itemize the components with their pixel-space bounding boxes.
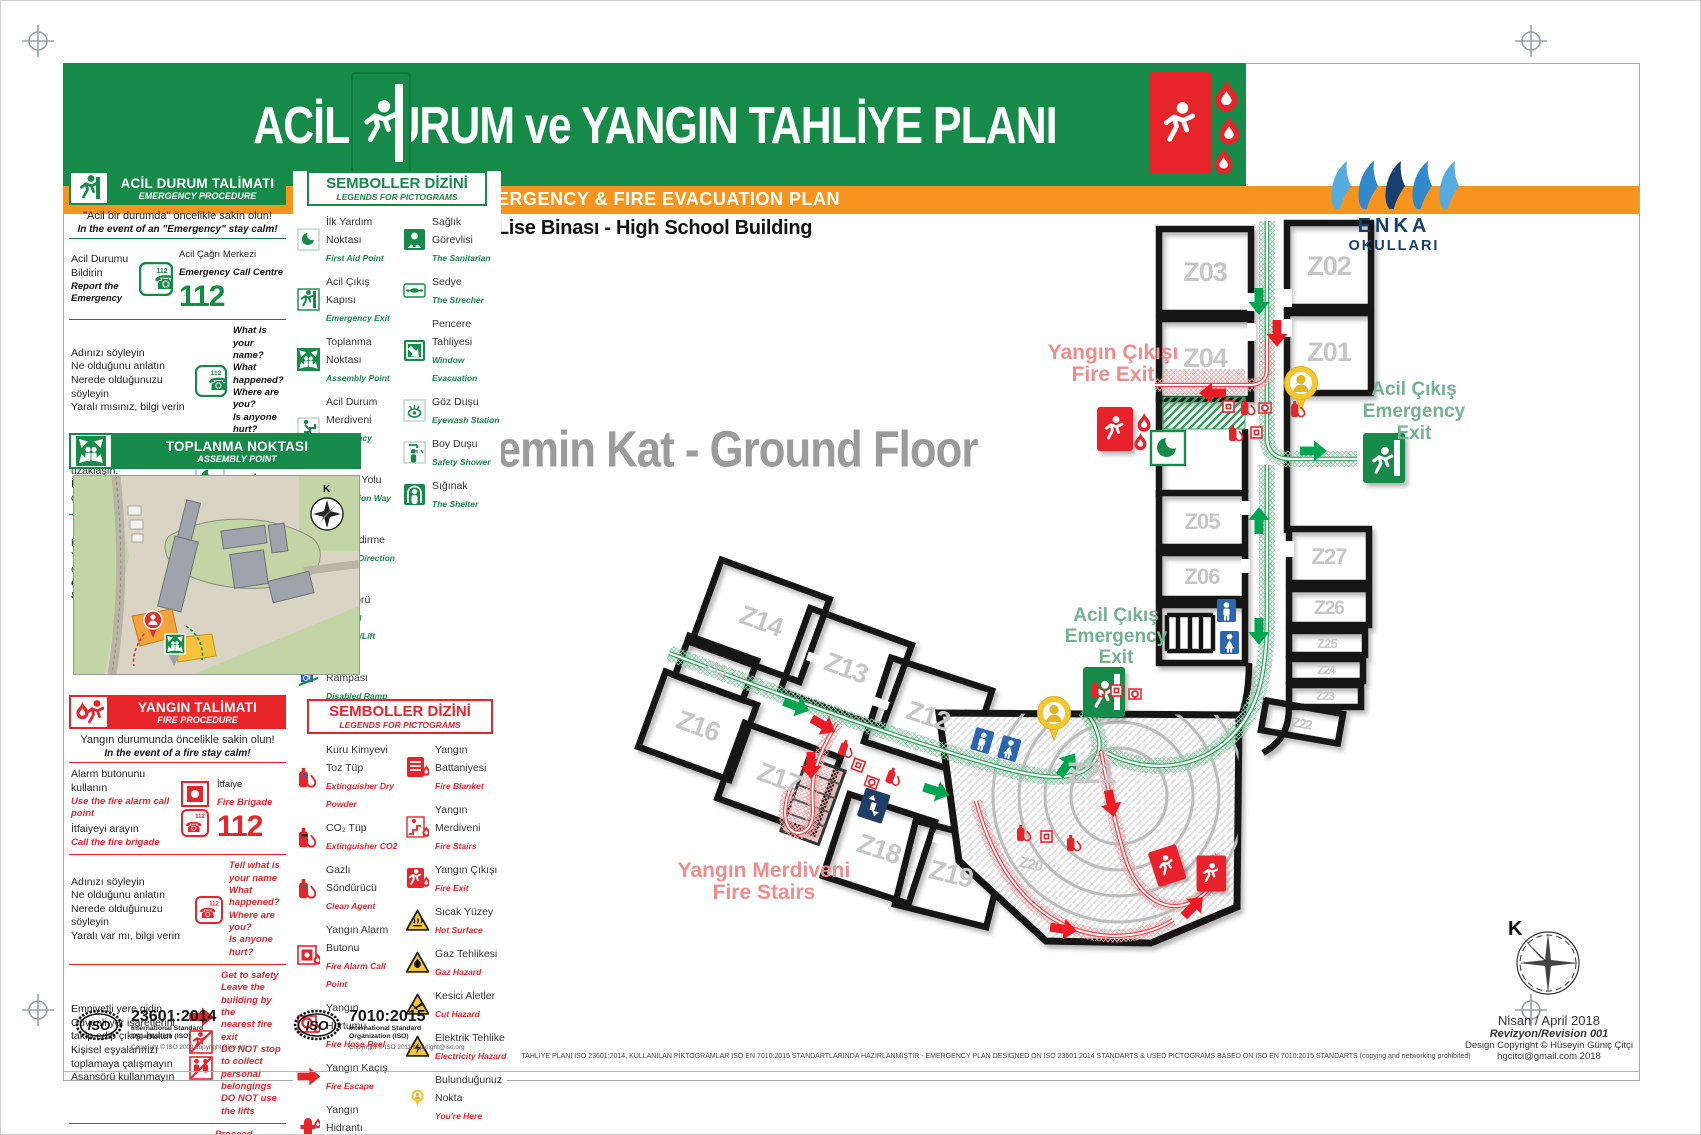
eyewash-icon: [403, 399, 426, 422]
procedure-row: Alarm butonunu kullanınUse the fire alar…: [69, 762, 286, 854]
fire-exit-flames: [1134, 413, 1150, 450]
panel-subtitle: EMERGENCY PROCEDURE: [139, 191, 257, 201]
iso-23601: ISO 23601:2014 International StandardOrg…: [75, 1009, 247, 1051]
window-evacuation-icon: [403, 339, 426, 362]
legend-item: Göz DuşuEyewash Station: [403, 392, 501, 428]
svg-text:Z05: Z05: [1185, 509, 1221, 534]
svg-text:Z16: Z16: [672, 704, 724, 747]
legend-title: SEMBOLLER DİZİNİ: [309, 703, 491, 720]
compass-icon: K: [1496, 909, 1596, 1009]
svg-text:Emergency: Emergency: [1065, 626, 1168, 647]
legend-item: SedyeThe Strecher: [403, 272, 501, 308]
footer-disclaimer: TAHLİYE PLANI ISO 23601:2014, KULLANILAN…: [351, 1053, 1641, 1060]
iso-certifications: ISO 23601:2014 International StandardOrg…: [75, 1009, 465, 1051]
svg-text:Z21: Z21: [1067, 757, 1116, 790]
first-aid-icon: [1151, 431, 1185, 465]
procedure-row: Adınızı söyleyin Ne olduğunu anlatın Ner…: [69, 319, 286, 441]
svg-text:Yangın Çıkışı: Yangın Çıkışı: [1048, 341, 1179, 364]
svg-text:K: K: [1508, 918, 1523, 940]
you-are-here-icon: [406, 1086, 429, 1109]
fire-stairs-icon: [406, 816, 429, 839]
svg-text:Z23: Z23: [1316, 689, 1335, 703]
legend-item: Boy DuşuSafety Shower: [403, 434, 501, 470]
iso-logo: ISO: [293, 1009, 341, 1041]
phone-112-icon: 112☎: [195, 365, 227, 397]
svg-text:Z24: Z24: [1317, 663, 1336, 677]
legend-item: Yangın Alarm ButonuFire Alarm Call Point: [297, 920, 398, 992]
wc-female-icon: [1220, 631, 1239, 654]
legend-item: Yangın HidrantıHydrant: [297, 1100, 398, 1135]
first-aid-point-icon: [297, 228, 320, 251]
footer-divider: [63, 1071, 1639, 1072]
evacuation-plan-poster: Z03 Z02 Z04 Z01 Z05 Z06 Z27 Z26 Z25 Z24 …: [0, 0, 1701, 1135]
fire-escape-arrow-icon: [297, 1065, 320, 1088]
enka-sub: OKULLARI: [1319, 238, 1469, 254]
panel-title: TOPLANMA NOKTASI: [166, 439, 308, 454]
exit-man-icon: [351, 72, 415, 178]
svg-text:Z14: Z14: [735, 599, 787, 642]
svg-text:Fire Stairs: Fire Stairs: [713, 881, 816, 904]
svg-text:Z25: Z25: [1317, 636, 1337, 651]
svg-text:ISO: ISO: [88, 1018, 110, 1033]
svg-text:Fire Exit: Fire Exit: [1072, 363, 1155, 386]
hot-surface-icon: [406, 909, 429, 932]
intro-en: In the event of a fire stay calm!: [69, 747, 286, 760]
fire-brigade-number: 112: [217, 810, 262, 843]
legend-item: İlk Yardım NoktasıFirst Aid Point: [297, 212, 395, 266]
legend-item: Bulunduğunuz NoktaYou're Here: [406, 1070, 507, 1124]
procedure-row: Acil Durumu BildirinReport the Emergency…: [69, 238, 286, 319]
clean-agent-icon: [297, 876, 320, 899]
legend-item: Yangın KaçışFire Escape: [297, 1058, 398, 1094]
header-banner: ACİL DURUM ve YANGIN TAHLİYE PLANI: [63, 63, 1246, 186]
svg-text:Z01: Z01: [1307, 337, 1352, 367]
panel-title: ACİL DURUM TALİMATI: [121, 176, 275, 191]
wc-male-icon: [1217, 599, 1236, 622]
procedure-row: Toplanma noktasına gidin, amire bilgi ve…: [69, 1123, 286, 1135]
fire-procedure-panel: YANGIN TALİMATI FIRE PROCEDURE Yangın du…: [69, 695, 286, 1135]
svg-text:Emergency: Emergency: [1363, 401, 1466, 422]
svg-text:Z13: Z13: [820, 646, 872, 689]
fire-exit-door-icon: [1197, 855, 1227, 891]
svg-text:Z22: Z22: [1291, 714, 1313, 732]
revision-number: Revizyon/Revision 001: [1449, 1028, 1649, 1040]
sanitarian-icon: [403, 228, 426, 251]
alarm-and-phone-icons: 112☎: [181, 781, 211, 837]
panel-subtitle: FIRE PROCEDURE: [157, 715, 238, 725]
panel-subtitle: ASSEMBLY POINT: [197, 454, 276, 464]
hydrant-icon: [297, 1116, 320, 1135]
svg-text:☎: ☎: [199, 905, 216, 921]
legend-item: Gazlı SöndürücüClean Agent: [297, 860, 398, 914]
assembly-point-panel: TOPLANMA NOKTASI ASSEMBLY POINT: [69, 433, 361, 469]
svg-text:Z03: Z03: [1183, 257, 1228, 287]
phone-112-icon: 112☎: [139, 262, 173, 296]
svg-text:Z02: Z02: [1307, 251, 1351, 281]
emergency-exit-icon: [297, 288, 320, 311]
legend-item: Yangın ÇıkışıFire Exit: [406, 860, 507, 896]
legend-item: Sıcak YüzeyHot Surface: [406, 902, 507, 938]
fire-exit-man-icon: [1149, 72, 1249, 178]
design-copyright: Design Copyright © Hüseyin Güniç Çitçi: [1449, 1040, 1649, 1051]
assembly-site-map: K: [73, 475, 360, 675]
intro-en: In the event of an "Emergency" stay calm…: [69, 223, 286, 236]
legend-item: SığınakThe Shelter: [403, 476, 501, 512]
legend-item: Yangın BattaniyesiFire Blanket: [406, 740, 507, 794]
revision-date: Nisan / April 2018: [1449, 1013, 1649, 1028]
svg-text:K: K: [323, 484, 331, 495]
intro-tr: Yangın durumunda öncelikle sakin olun!: [69, 733, 286, 747]
legend-subtitle: LEGENDS FOR PICTOGRAMS: [309, 720, 491, 730]
assembly-point-icon: [297, 348, 320, 371]
floor-title: Zemin Kat - Ground Floor: [471, 419, 946, 478]
stairs-icon: [1167, 615, 1213, 651]
safety-shower-icon: [403, 441, 426, 464]
panel-title: YANGIN TALİMATI: [138, 700, 257, 715]
fire-exit-door-icon: [1097, 407, 1133, 451]
svg-text:Z06: Z06: [1185, 564, 1221, 589]
svg-text:Z04: Z04: [1183, 343, 1228, 373]
svg-text:Z18: Z18: [854, 828, 906, 870]
enka-name: ENKA: [1319, 215, 1469, 238]
iso-logo: ISO: [75, 1009, 123, 1041]
assembly-point-icon: [69, 433, 113, 469]
svg-text:ISO: ISO: [306, 1018, 328, 1033]
legend-item: Pencere TahliyesiWindow Evacuation: [403, 314, 501, 386]
svg-text:Yangın Merdiveni: Yangın Merdiveni: [678, 859, 851, 882]
enka-logo: ENKA OKULLARI: [1319, 157, 1469, 254]
fire-exit-man-icon: [69, 695, 109, 729]
legend-item: Gaz TehlikesiGaz Hazard: [406, 944, 507, 980]
shelter-icon: [403, 483, 426, 506]
legend-subtitle: LEGENDS FOR PICTOGRAMS: [309, 192, 485, 202]
extinguisher-co2-icon: [297, 825, 320, 848]
legend-red: SEMBOLLER DİZİNİ LEGENDS FOR PICTOGRAMS …: [293, 699, 507, 1135]
svg-text:☎: ☎: [208, 375, 227, 394]
legend-title: SEMBOLLER DİZİNİ: [309, 175, 485, 192]
elevator-icon: [857, 787, 891, 824]
legend-item: CO₂ TüpExtinguisher CO2: [297, 818, 398, 854]
svg-text:Z27: Z27: [1312, 544, 1348, 569]
legend-item: Toplanma NoktasıAssembly Point: [297, 332, 395, 386]
exit-man-icon: [69, 171, 109, 205]
procedure-row: Adınızı söyleyin Ne olduğunu anlatın Ner…: [69, 854, 286, 964]
emergency-number: 112: [179, 280, 224, 313]
svg-text:Exit: Exit: [1397, 423, 1433, 444]
gas-hazard-icon: [406, 951, 429, 974]
intro-tr: "Acil bir durumda" öncelikle sakin olun!: [69, 209, 286, 223]
enka-faces-icon: [1319, 157, 1469, 209]
iso-7010: ISO 7010:2015 International StandardOrga…: [293, 1009, 465, 1051]
svg-text:☎: ☎: [185, 819, 202, 835]
svg-text:☎: ☎: [154, 273, 173, 294]
legend-item: Yangın MerdiveniFire Stairs: [406, 800, 507, 854]
svg-text:Acil Çıkış: Acil Çıkış: [1073, 605, 1159, 626]
svg-text:Exit: Exit: [1099, 647, 1135, 668]
fire-blanket-icon: [406, 756, 429, 779]
svg-text:Acil Çıkış: Acil Çıkış: [1371, 379, 1457, 400]
extinguisher-dry-powder-icon: [297, 765, 320, 788]
fire-exit-icon: [406, 867, 429, 890]
svg-text:Z12: Z12: [903, 695, 954, 737]
legend-item: Kuru Kimyevi Toz TüpExtinguisher Dry Pow…: [297, 740, 398, 812]
svg-text:Z26: Z26: [1314, 598, 1344, 619]
fire-alarm-call-point-icon: [297, 945, 320, 968]
stretcher-icon: [403, 279, 426, 302]
legend-item: Sağlık GörevlisiThe Sanitarian: [403, 212, 501, 266]
legend-item: Acil Çıkış KapısıEmergency Exit: [297, 272, 395, 326]
phone-112-icon: 112☎: [195, 896, 223, 924]
